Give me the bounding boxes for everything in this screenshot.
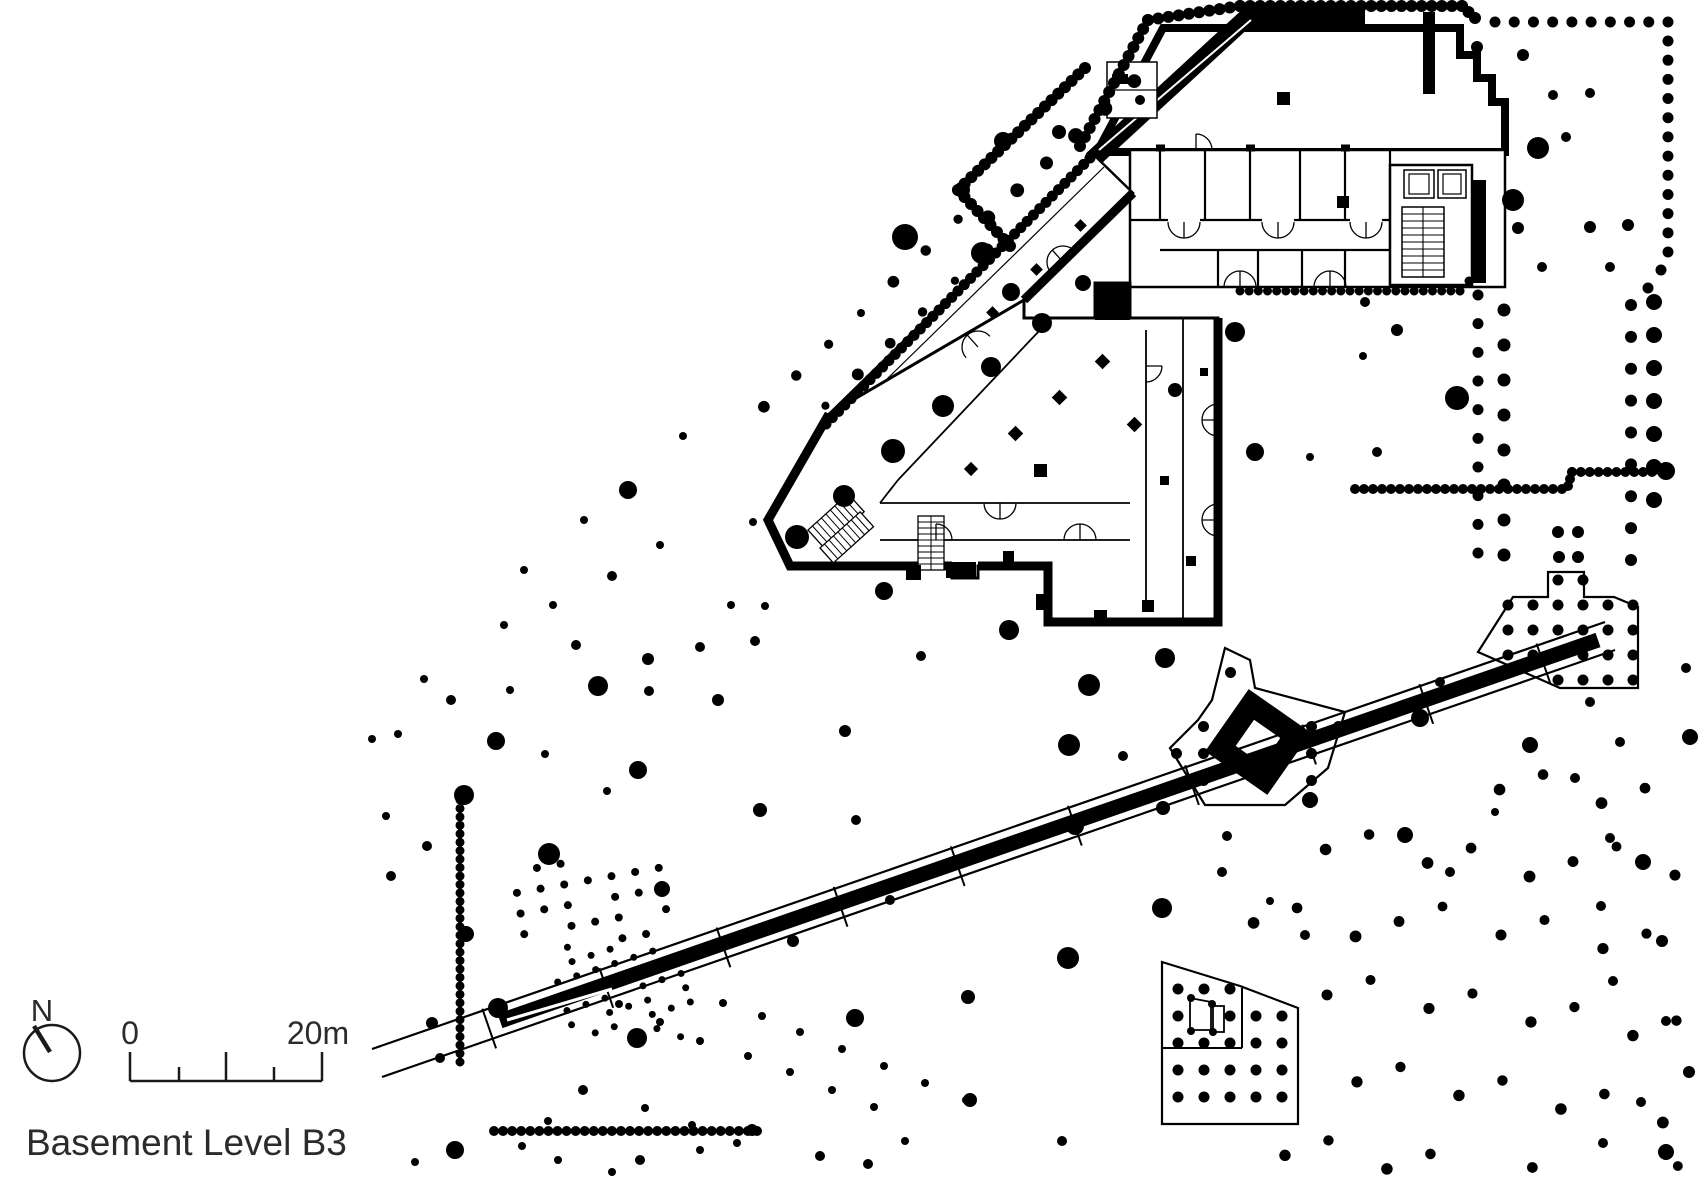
band-column [1337,196,1349,208]
hall-column [1277,92,1290,105]
stair-elevator-core [1390,165,1486,285]
building-complex [768,8,1505,623]
wall-bar [1423,12,1435,94]
entry-notch [946,562,976,578]
scale-max-label: 20m [287,1015,349,1051]
lower-block [768,283,1218,622]
north-label: N [31,993,53,1028]
scale-bar [130,1052,322,1081]
site-plan-page: N 0 20m Basement Level B3 [0,0,1700,1178]
legend: N 0 20m Basement Level B3 [24,993,349,1163]
scale-zero-label: 0 [121,1015,139,1051]
north-arrow [24,1025,80,1081]
corner-wall-block [1095,283,1130,320]
page-title: Basement Level B3 [26,1122,347,1163]
site-plan-canvas: N 0 20m Basement Level B3 [0,0,1700,1178]
